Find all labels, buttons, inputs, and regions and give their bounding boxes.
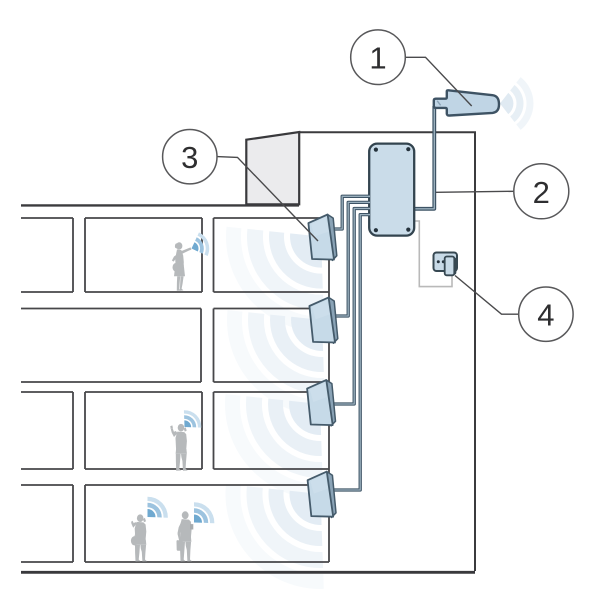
svg-text:4: 4 bbox=[537, 298, 554, 333]
svg-text:2: 2 bbox=[533, 175, 550, 210]
svg-text:3: 3 bbox=[181, 140, 198, 175]
svg-text:1: 1 bbox=[369, 41, 386, 76]
